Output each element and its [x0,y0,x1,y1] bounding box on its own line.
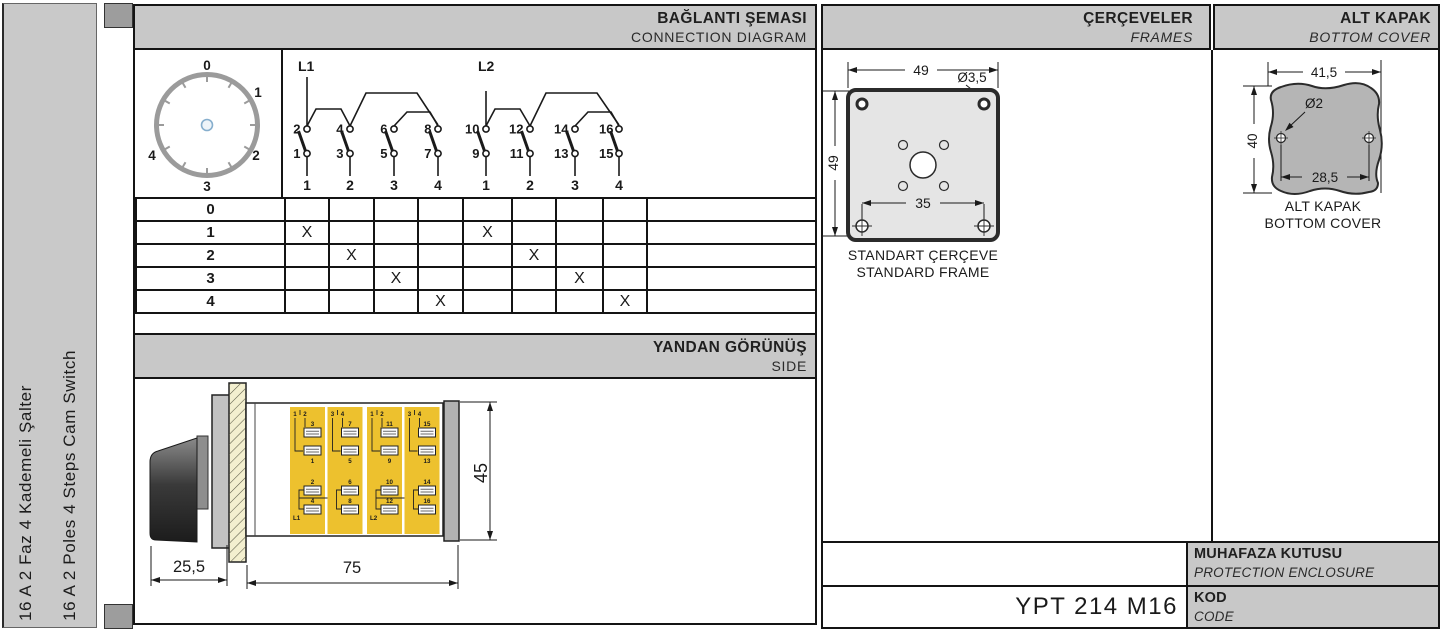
code-label-tr: KOD [1194,589,1432,608]
end-plate [444,401,459,541]
code-row: YPT 214 M16 KOD CODE [821,585,1440,629]
side-view-header: YANDAN GÖRÜNÜŞ SIDE [135,333,815,379]
protection-label-tr: MUHAFAZA KUTUSU [1194,545,1432,564]
state-cell [512,290,556,313]
cover-caption-tr: ALT KAPAK [1285,198,1362,214]
protection-row: MUHAFAZA KUTUSU PROTECTION ENCLOSURE [821,541,1440,585]
dial-pos-4: 4 [148,148,156,163]
svg-text:4: 4 [434,177,442,193]
wiring-schematic: L1 L2 2 4 6 8 10 12 14 16 1 3 5 7 9 11 1… [283,50,815,197]
svg-text:16: 16 [424,498,431,505]
dim-body: 75 [343,559,361,577]
state-cell: X [463,221,512,244]
cover-dim-width: 41,5 [1311,65,1337,80]
svg-text:2: 2 [303,411,307,418]
step-numbers: 1 2 3 4 1 2 3 4 [303,177,623,193]
frame-caption-tr: STANDART ÇERÇEVE [848,247,998,263]
state-table: 01XX2XX3XX4XX [135,197,817,314]
binder-mark-top [104,3,133,28]
cover-header: ALT KAPAK BOTTOM COVER [1213,4,1440,50]
state-cell [329,290,374,313]
binder-mark-bottom [104,604,133,629]
product-title-tr: 16 A 2 Faz 4 Kademeli Şalter [16,385,36,621]
feed-l2-label: L2 [478,58,495,74]
state-cell [329,221,374,244]
bottom-cover-drawing: 41,5 40 Ø2 28,5 AL [1213,50,1440,541]
state-cell [463,244,512,267]
dim-height: 45 [471,463,491,483]
state-table-row: 0 [136,198,816,221]
state-cell [556,221,603,244]
frame-dim-width: 49 [913,62,929,78]
side-view-drawing: 123124L1347568121191012L23415131416 45 2… [135,379,815,623]
code-label-en: CODE [1194,608,1432,625]
state-row-label: 0 [136,198,285,221]
svg-text:11: 11 [386,421,393,428]
knob-neck [197,436,208,509]
svg-text:10: 10 [465,122,479,137]
frame-dim-height: 49 [825,155,841,171]
state-row-label: 2 [136,244,285,267]
connection-section: BAĞLANTI ŞEMASI CONNECTION DIAGRAM 0 1 2… [133,4,817,625]
dial-pos-1: 1 [254,85,262,100]
svg-text:3: 3 [408,411,412,418]
svg-text:14: 14 [554,122,569,137]
svg-text:5: 5 [380,146,387,161]
svg-text:4: 4 [336,122,344,137]
state-cell [418,244,463,267]
svg-text:4: 4 [341,411,345,418]
frame-center-hole [910,152,936,178]
state-cell [556,198,603,221]
svg-text:3: 3 [571,177,579,193]
state-table-row: 2XX [136,244,816,267]
svg-text:12: 12 [386,498,393,505]
frame-hole-tl [857,99,867,109]
product-code: YPT 214 M16 [823,587,1186,627]
svg-text:1: 1 [311,458,315,465]
dial-center-icon [202,120,213,131]
state-cell [418,198,463,221]
state-cell [512,198,556,221]
state-cell-wide [647,221,816,244]
state-cell [512,221,556,244]
dial-pos-0: 0 [203,58,211,73]
side-title-en: SIDE [135,357,807,375]
dial-pos-3: 3 [203,179,211,194]
sidebar: 16 A 2 Faz 4 Kademeli Şalter 16 A 2 Pole… [2,3,97,628]
state-cell [285,244,329,267]
svg-text:13: 13 [554,146,568,161]
svg-text:1: 1 [482,177,490,193]
svg-text:1: 1 [293,146,300,161]
svg-text:4: 4 [418,411,422,418]
svg-text:11: 11 [510,146,524,161]
svg-text:8: 8 [348,498,352,505]
svg-text:6: 6 [348,479,352,486]
svg-text:3: 3 [390,177,398,193]
dial-pos-2: 2 [252,148,260,163]
code-value-cell: YPT 214 M16 [821,585,1186,629]
front-plate [212,395,230,548]
svg-text:2: 2 [380,411,384,418]
state-cell [603,244,647,267]
svg-text:1: 1 [370,411,374,418]
state-cell [463,290,512,313]
svg-text:3: 3 [336,146,343,161]
svg-text:16: 16 [599,122,613,137]
svg-text:4: 4 [311,498,315,505]
frames-title-tr: ÇERÇEVELER [823,9,1193,28]
state-cell [285,267,329,290]
state-cell: X [418,290,463,313]
svg-text:9: 9 [472,146,479,161]
state-cell [418,221,463,244]
cover-caption-en: BOTTOM COVER [1265,215,1382,231]
state-cell-wide [647,198,816,221]
cover-title-en: BOTTOM COVER [1215,28,1431,46]
svg-text:7: 7 [348,421,352,428]
frame-hole-tr [979,99,989,109]
state-table-row: 1XX [136,221,816,244]
state-cell [374,198,418,221]
state-row-label: 4 [136,290,285,313]
state-row-label: 3 [136,267,285,290]
state-table-row: 3XX [136,267,816,290]
side-title-tr: YANDAN GÖRÜNÜŞ [135,338,807,357]
svg-text:9: 9 [388,458,392,465]
state-cell-wide [647,267,816,290]
cover-dim-height: 40 [1245,133,1260,148]
frames-title-en: FRAMES [823,28,1193,46]
dim-front: 25,5 [173,558,205,576]
svg-text:1: 1 [303,177,311,193]
frame-dim-hole: Ø3,5 [957,70,986,85]
svg-text:3: 3 [331,411,335,418]
state-cell [603,221,647,244]
svg-text:15: 15 [424,421,431,428]
svg-text:14: 14 [424,479,431,486]
state-cell: X [329,244,374,267]
svg-text:2: 2 [346,177,354,193]
connection-title-tr: BAĞLANTI ŞEMASI [135,9,807,28]
frame-dim-spacing: 35 [915,195,931,211]
cover-dim-spacing: 28,5 [1312,170,1338,185]
feed-l1-label: L1 [298,58,315,74]
connection-header: BAĞLANTI ŞEMASI CONNECTION DIAGRAM [135,6,815,50]
state-cell [329,198,374,221]
svg-text:2: 2 [293,122,300,137]
cover-dim-hole: Ø2 [1305,96,1323,111]
svg-text:15: 15 [599,146,613,161]
svg-text:1: 1 [293,411,297,418]
connection-title-en: CONNECTION DIAGRAM [135,28,807,46]
frame-caption-en: STANDARD FRAME [856,264,989,280]
code-label-cell: KOD CODE [1186,585,1440,629]
state-table-row: 4XX [136,290,816,313]
state-cell [556,290,603,313]
state-cell: X [556,267,603,290]
svg-text:5: 5 [348,458,352,465]
svg-text:7: 7 [424,146,431,161]
state-cell: X [603,290,647,313]
svg-text:2: 2 [311,479,315,486]
state-row-label: 1 [136,221,285,244]
svg-text:2: 2 [526,177,534,193]
svg-text:12: 12 [509,122,523,137]
state-cell [463,198,512,221]
svg-text:10: 10 [386,479,393,486]
protection-label-cell: MUHAFAZA KUTUSU PROTECTION ENCLOSURE [1186,541,1440,585]
state-cell [512,267,556,290]
svg-text:L2: L2 [370,515,378,522]
state-cell: X [374,267,418,290]
frames-header: ÇERÇEVELER FRAMES [821,4,1211,50]
state-cell-wide [647,290,816,313]
state-cell [374,290,418,313]
state-cell [463,267,512,290]
state-cell [374,244,418,267]
rotary-dial-diagram: 0 1 2 3 4 [135,50,281,197]
svg-text:6: 6 [380,122,387,137]
datasheet-page: 16 A 2 Faz 4 Kademeli Şalter 16 A 2 Pole… [0,0,1445,631]
protection-value-cell [821,541,1186,585]
state-cell [603,267,647,290]
state-cell: X [512,244,556,267]
state-cell [603,198,647,221]
svg-text:13: 13 [424,458,431,465]
terminal-numbers: 2 4 6 8 10 12 14 16 1 3 5 7 9 11 13 15 [293,122,613,162]
mounting-panel-hatch [229,383,246,562]
state-cell [329,267,374,290]
contact-blades [299,131,618,151]
state-cell [556,244,603,267]
svg-text:L1: L1 [293,515,301,522]
state-cell-wide [647,244,816,267]
state-cell [374,221,418,244]
svg-text:3: 3 [311,421,315,428]
state-cell [285,198,329,221]
protection-label-en: PROTECTION ENCLOSURE [1194,564,1432,581]
svg-text:4: 4 [615,177,623,193]
state-cell: X [285,221,329,244]
knob [150,438,197,542]
product-title-en: 16 A 2 Poles 4 Steps Cam Switch [60,350,80,621]
cover-title-tr: ALT KAPAK [1215,9,1431,28]
standard-frame-drawing: 49 Ø3,5 49 [821,50,1213,541]
state-cell [285,290,329,313]
state-cell [418,267,463,290]
svg-text:8: 8 [424,122,431,137]
